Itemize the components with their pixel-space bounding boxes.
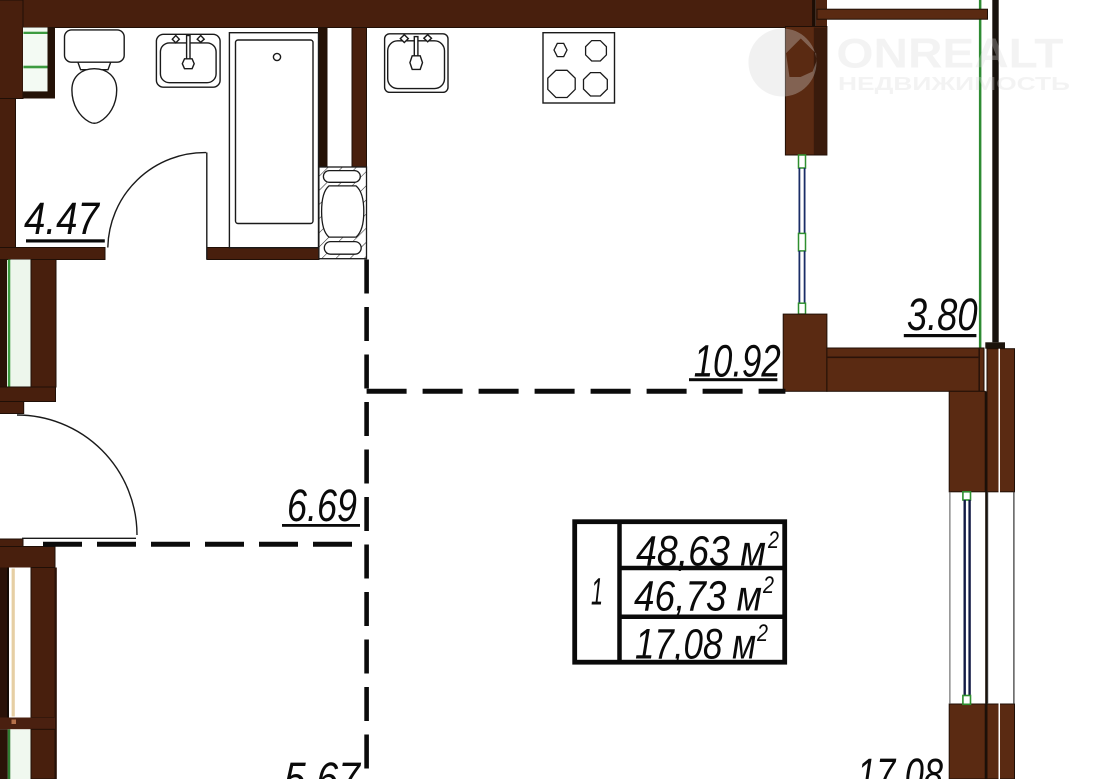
svg-text:4.47: 4.47 — [24, 193, 101, 244]
svg-text:3.80: 3.80 — [907, 289, 978, 340]
svg-text:2: 2 — [756, 620, 768, 647]
svg-text:48,63 м: 48,63 м — [636, 527, 766, 575]
svg-text:17.08: 17.08 — [857, 749, 943, 779]
svg-text:17,08 м: 17,08 м — [635, 620, 756, 668]
svg-text:2: 2 — [767, 527, 779, 554]
svg-text:6.69: 6.69 — [287, 480, 357, 531]
svg-text:5.67: 5.67 — [284, 753, 362, 779]
svg-text:НЕДВИЖИМОСТЬ: НЕДВИЖИМОСТЬ — [838, 74, 1070, 94]
svg-text:46,73 м: 46,73 м — [634, 572, 762, 620]
svg-text:2: 2 — [762, 572, 774, 599]
svg-text:1: 1 — [591, 571, 603, 613]
svg-text:ONREALT: ONREALT — [836, 29, 1063, 76]
